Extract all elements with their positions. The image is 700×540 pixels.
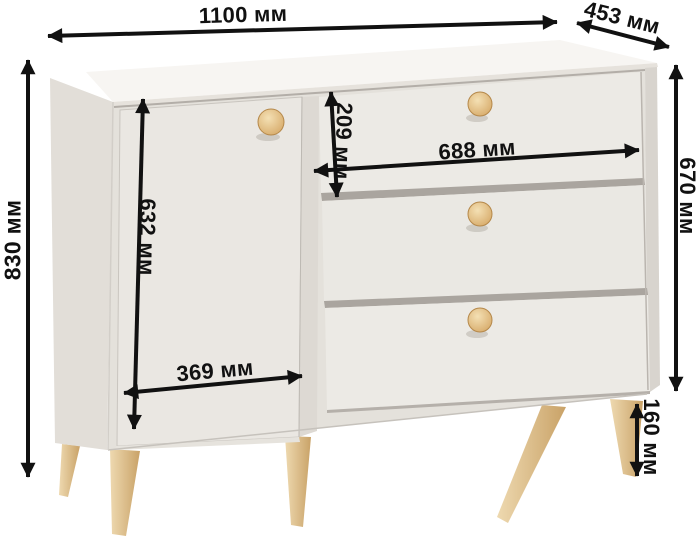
door-knob	[258, 109, 284, 135]
dim-label-leg-height: 160 мм	[638, 398, 664, 475]
furniture-dimension-diagram: 1100 мм 453 мм 830 мм 670 мм 632 мм 369 …	[0, 0, 700, 540]
leg-front-middle	[285, 436, 311, 527]
leg-back-right	[497, 405, 566, 523]
dim-arrow-overall-width	[48, 22, 557, 36]
dresser-illustration	[0, 0, 700, 540]
dim-label-overall-height: 830 мм	[0, 200, 27, 281]
dim-label-drawer-height: 209 мм	[329, 102, 358, 180]
drawer-2-knob	[468, 202, 492, 226]
leg-back-left	[59, 444, 80, 497]
leg-front-left	[110, 449, 140, 536]
drawer-3-knob	[468, 308, 492, 332]
dim-label-overall-width: 1100 мм	[198, 1, 287, 29]
dim-label-drawer-width: 688 мм	[438, 134, 517, 165]
dim-label-door-height: 632 мм	[134, 198, 161, 275]
left-side-panel	[50, 78, 113, 450]
dim-label-body-height: 670 мм	[674, 157, 700, 234]
drawer-1-knob	[468, 92, 492, 116]
